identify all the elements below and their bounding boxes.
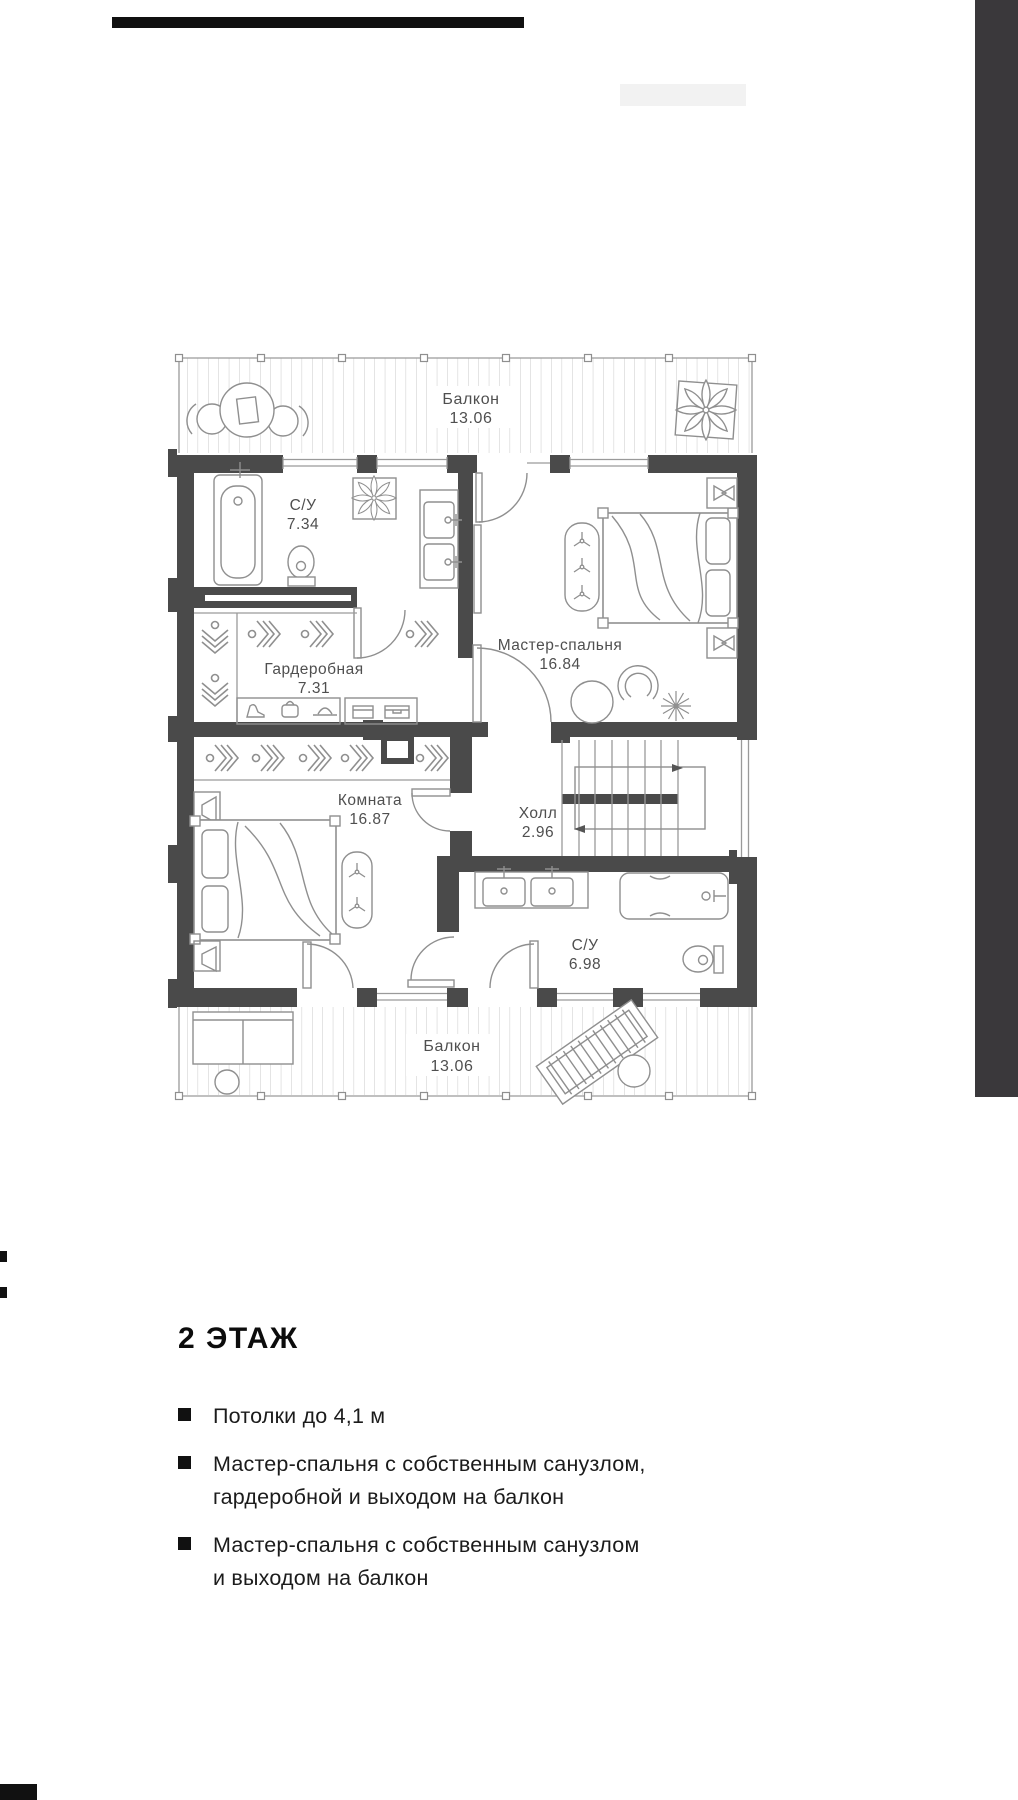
room-bedroom: Комната 16.87 (190, 745, 450, 971)
svg-text:13.06: 13.06 (430, 1058, 473, 1075)
hanger-icon (202, 622, 228, 654)
svg-text:Комната: Комната (338, 792, 402, 809)
room-label-bath-bottom: С/У 6.98 (569, 937, 601, 973)
svg-text:6.98: 6.98 (569, 956, 601, 973)
list-item: Мастер-спальня с собственным санузлом и … (178, 1529, 738, 1595)
list-item: Потолки до 4,1 м (178, 1400, 738, 1433)
room-label-wardrobe: Гардеробная 7.31 (264, 661, 363, 697)
duct-inner (387, 741, 408, 758)
feature-text: Потолки до 4,1 м (213, 1400, 385, 1433)
small-table-icon (618, 1055, 650, 1087)
tv-icon (194, 941, 220, 971)
double-sink-icon (475, 866, 588, 908)
plant-icon (661, 691, 691, 721)
room-label-bath-top: С/У 7.34 (287, 497, 319, 533)
feature-text: Мастер-спальня с собственным санузлом, г… (213, 1448, 646, 1514)
svg-text:Балкон: Балкон (442, 391, 499, 408)
toilet-icon (288, 546, 315, 586)
hanger-icon (407, 621, 439, 647)
hanger-icon (302, 621, 334, 647)
armchair-icon (618, 666, 658, 700)
wall-channel (205, 595, 351, 601)
bathtub-icon (620, 873, 728, 919)
list-item: Мастер-спальня с собственным санузлом, г… (178, 1448, 738, 1514)
svg-text:Гардеробная: Гардеробная (264, 661, 363, 678)
top-balcony: Балкон 13.06 (176, 355, 756, 454)
svg-text:7.31: 7.31 (298, 680, 330, 697)
double-sink-icon (420, 490, 462, 588)
bullet-square-icon (178, 1408, 191, 1421)
feature-list: Потолки до 4,1 м Мастер-спальня с собств… (178, 1400, 738, 1595)
shelf-accessories-icon (237, 698, 340, 724)
bench-icon (193, 1012, 293, 1064)
nightstand-icon (707, 478, 737, 508)
svg-text:Мастер-спальня: Мастер-спальня (498, 637, 623, 654)
rug-icon (565, 523, 599, 611)
mirror-panel (474, 525, 481, 613)
hanger-icon (300, 745, 332, 771)
small-table-icon (215, 1070, 239, 1094)
svg-text:13.06: 13.06 (449, 410, 492, 427)
round-table-icon (571, 681, 613, 723)
page: { "plan": { "balcony_top": {"name": "Бал… (0, 0, 1018, 1800)
bath-bottom: С/У 6.98 (475, 866, 728, 973)
plant-icon (675, 380, 737, 440)
toilet-icon (683, 946, 723, 973)
svg-text:16.84: 16.84 (539, 656, 580, 673)
bathtub-icon (214, 462, 262, 585)
svg-text:Балкон: Балкон (423, 1038, 480, 1055)
svg-text:2.96: 2.96 (522, 824, 554, 841)
bed-icon (190, 816, 340, 944)
hanger-icon (342, 745, 374, 771)
bottom-balcony: Балкон 13.06 (176, 1000, 756, 1104)
hanger-icon (207, 745, 239, 771)
bullet-square-icon (178, 1456, 191, 1469)
svg-text:Холл: Холл (519, 805, 558, 822)
room-label-hall: Холл 2.96 (519, 805, 558, 841)
hanger-icon (249, 621, 281, 647)
bed-icon (598, 508, 738, 628)
hanger-icon (202, 675, 228, 707)
floor-title: 2 ЭТАЖ (178, 1322, 738, 1356)
rug-icon (342, 852, 372, 928)
svg-text:С/У: С/У (572, 937, 599, 954)
svg-text:7.34: 7.34 (287, 516, 319, 533)
room-label-room: Комната 16.87 (338, 792, 402, 828)
svg-text:16.87: 16.87 (349, 811, 390, 828)
room-label-master: Мастер-спальня 16.84 (498, 637, 623, 673)
plant-icon (352, 476, 396, 520)
hanger-icon (417, 745, 449, 771)
floor-info-section: 2 ЭТАЖ Потолки до 4,1 м Мастер-спальня с… (178, 1322, 738, 1610)
bullet-square-icon (178, 1537, 191, 1550)
svg-text:С/У: С/У (290, 497, 317, 514)
hanger-icon (253, 745, 285, 771)
feature-text: Мастер-спальня с собственным санузлом и … (213, 1529, 639, 1595)
master-bedroom: Мастер-спальня 16.84 (498, 478, 738, 723)
nightstand-icon (707, 628, 737, 658)
